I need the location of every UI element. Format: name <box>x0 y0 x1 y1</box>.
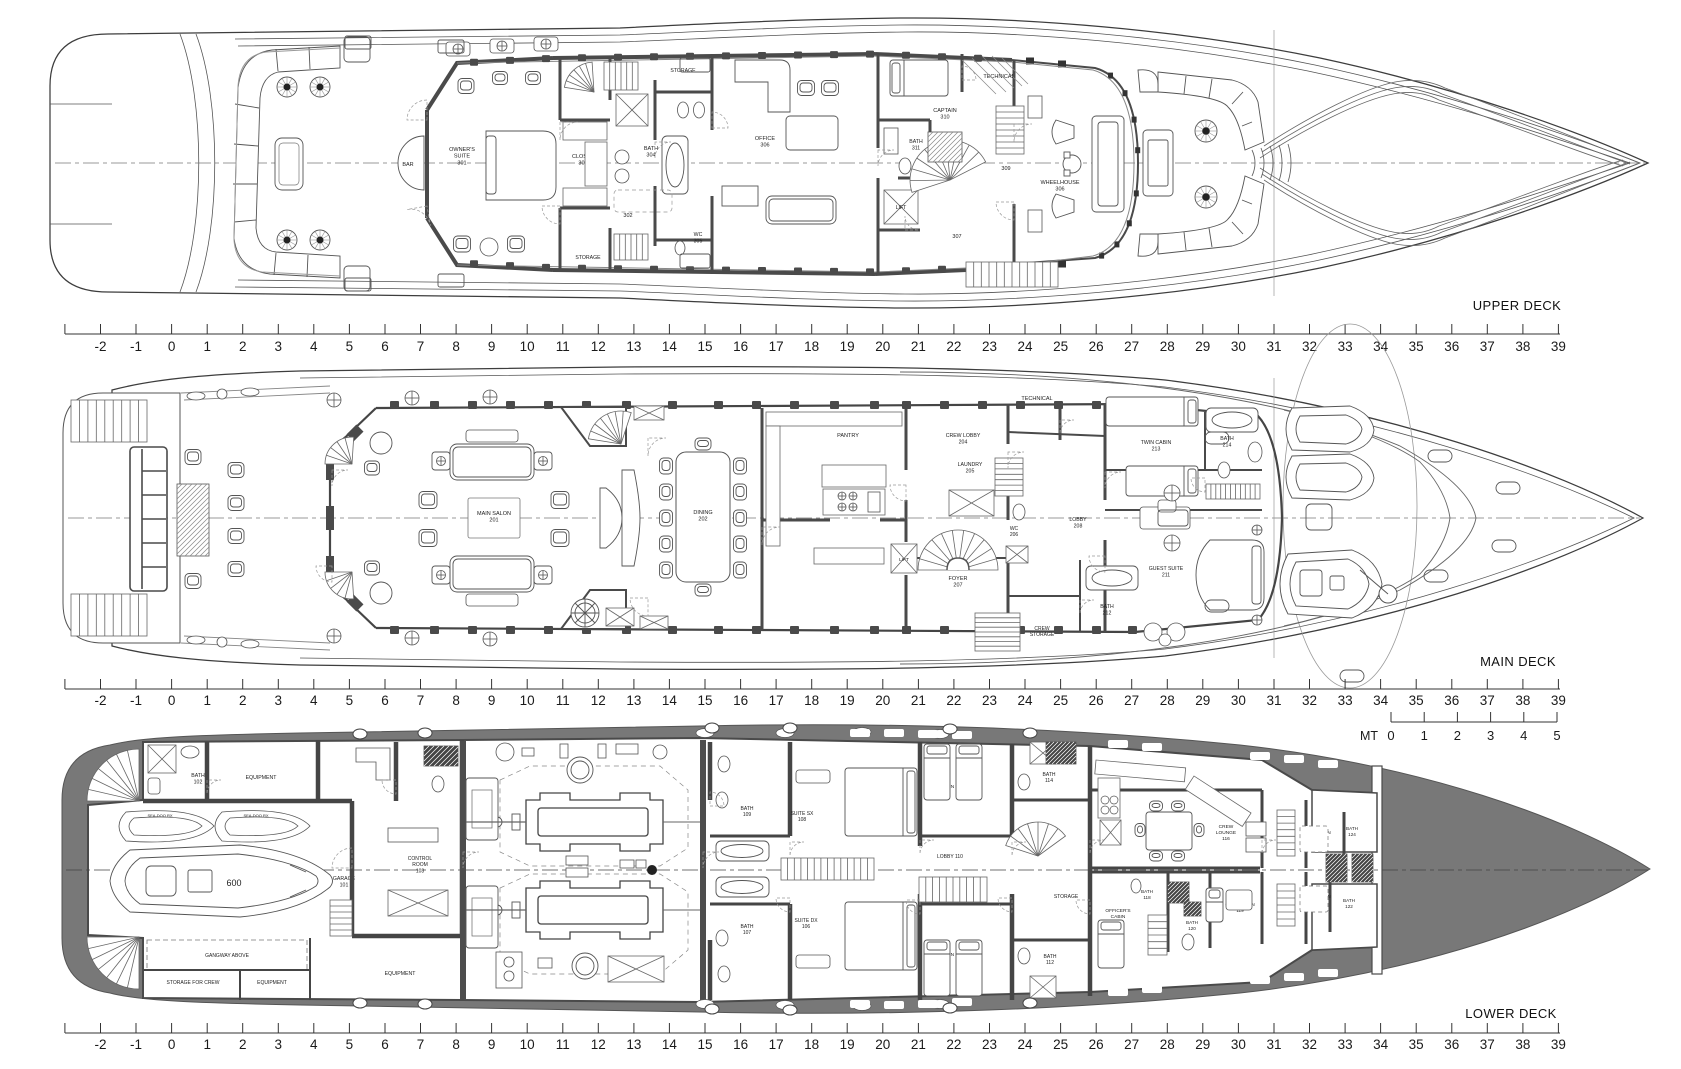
svg-text:0: 0 <box>168 693 176 708</box>
svg-text:35: 35 <box>1409 1037 1424 1052</box>
svg-text:22: 22 <box>946 693 961 708</box>
svg-text:103: 103 <box>416 868 425 874</box>
svg-text:BATH: BATH <box>1100 604 1114 610</box>
svg-text:6: 6 <box>381 1037 389 1052</box>
svg-text:14: 14 <box>662 693 678 708</box>
svg-text:1: 1 <box>203 339 211 354</box>
svg-text:BATH: BATH <box>1043 772 1056 778</box>
svg-text:BATH: BATH <box>644 146 658 152</box>
svg-text:306: 306 <box>760 143 769 149</box>
svg-text:TECHNICAL: TECHNICAL <box>1021 396 1052 402</box>
svg-text:37: 37 <box>1480 339 1495 354</box>
svg-text:2: 2 <box>1454 728 1461 743</box>
svg-text:CABIN: CABIN <box>1111 914 1126 920</box>
svg-text:BATH: BATH <box>1343 898 1355 903</box>
svg-text:15: 15 <box>697 693 712 708</box>
svg-text:304: 304 <box>646 153 655 159</box>
svg-text:CONTROL: CONTROL <box>408 856 433 862</box>
svg-text:OFFICER'S: OFFICER'S <box>1105 908 1130 914</box>
svg-text:20: 20 <box>875 693 890 708</box>
svg-text:21: 21 <box>911 1037 926 1052</box>
svg-text:2: 2 <box>239 1037 247 1052</box>
svg-text:24: 24 <box>1017 1037 1033 1052</box>
svg-text:0: 0 <box>168 1037 176 1052</box>
svg-text:35: 35 <box>1409 339 1424 354</box>
svg-text:23: 23 <box>982 339 997 354</box>
svg-text:18: 18 <box>804 1037 819 1052</box>
svg-text:29: 29 <box>1195 339 1210 354</box>
svg-text:5: 5 <box>346 1037 354 1052</box>
svg-text:34: 34 <box>1373 1037 1389 1052</box>
svg-text:SUITE DX: SUITE DX <box>794 918 818 924</box>
svg-text:15: 15 <box>697 339 712 354</box>
svg-text:36: 36 <box>1444 693 1459 708</box>
svg-text:STORAGE FOR CREW: STORAGE FOR CREW <box>167 980 220 986</box>
svg-text:ROOM: ROOM <box>412 862 428 868</box>
svg-text:4: 4 <box>310 339 318 354</box>
svg-text:12: 12 <box>591 693 606 708</box>
svg-text:SEA-DOO RX: SEA-DOO RX <box>243 813 268 818</box>
svg-text:106: 106 <box>802 924 811 930</box>
svg-text:9: 9 <box>488 339 496 354</box>
svg-text:BAR: BAR <box>402 162 413 168</box>
svg-text:SUITE: SUITE <box>454 154 471 160</box>
svg-text:21: 21 <box>911 339 926 354</box>
svg-text:204: 204 <box>959 439 968 445</box>
svg-text:BATH: BATH <box>909 139 923 145</box>
svg-text:37: 37 <box>1480 693 1495 708</box>
svg-text:SEA-DOO RX: SEA-DOO RX <box>147 813 172 818</box>
svg-text:1: 1 <box>1421 728 1428 743</box>
svg-text:STORAGE: STORAGE <box>575 255 601 261</box>
svg-text:4: 4 <box>310 693 318 708</box>
svg-text:BATH: BATH <box>191 773 205 779</box>
svg-text:19: 19 <box>840 339 855 354</box>
svg-text:25: 25 <box>1053 693 1068 708</box>
svg-text:14: 14 <box>662 339 678 354</box>
svg-text:102: 102 <box>194 779 203 785</box>
svg-text:27: 27 <box>1124 339 1139 354</box>
svg-text:39: 39 <box>1551 693 1566 708</box>
svg-text:2: 2 <box>239 693 247 708</box>
svg-text:5: 5 <box>346 339 354 354</box>
svg-text:28: 28 <box>1160 1037 1175 1052</box>
svg-text:CREW: CREW <box>1034 626 1050 632</box>
svg-text:17: 17 <box>769 693 784 708</box>
svg-text:OFFICE: OFFICE <box>755 136 775 142</box>
svg-text:30: 30 <box>1231 693 1246 708</box>
svg-text:28: 28 <box>1160 339 1175 354</box>
svg-text:SUITE SX: SUITE SX <box>791 811 814 817</box>
svg-text:11: 11 <box>556 693 570 708</box>
svg-text:211: 211 <box>1162 572 1170 578</box>
svg-text:7: 7 <box>417 1037 425 1052</box>
svg-text:BATH: BATH <box>1141 889 1153 894</box>
svg-text:10: 10 <box>520 693 535 708</box>
svg-text:MAIN DECK: MAIN DECK <box>1480 654 1556 669</box>
svg-text:202: 202 <box>698 517 707 523</box>
svg-text:0: 0 <box>1387 728 1394 743</box>
svg-text:9: 9 <box>488 693 496 708</box>
svg-text:116: 116 <box>1222 836 1230 842</box>
svg-text:10: 10 <box>520 1037 535 1052</box>
svg-text:39: 39 <box>1551 339 1566 354</box>
svg-text:120: 120 <box>1188 926 1196 931</box>
svg-text:31: 31 <box>1266 1037 1281 1052</box>
svg-text:6: 6 <box>381 339 389 354</box>
svg-text:26: 26 <box>1089 339 1104 354</box>
svg-text:25: 25 <box>1053 339 1068 354</box>
svg-text:26: 26 <box>1089 1037 1104 1052</box>
svg-text:-2: -2 <box>94 693 106 708</box>
svg-text:LIFT: LIFT <box>896 205 907 211</box>
svg-text:600: 600 <box>226 878 241 888</box>
svg-text:101: 101 <box>340 882 349 888</box>
svg-text:3: 3 <box>1487 728 1494 743</box>
svg-text:-1: -1 <box>130 339 142 354</box>
svg-text:5: 5 <box>1553 728 1560 743</box>
svg-text:BATH: BATH <box>1346 826 1358 831</box>
svg-text:16: 16 <box>733 1037 748 1052</box>
svg-text:13: 13 <box>626 1037 641 1052</box>
svg-text:EQUIPMENT: EQUIPMENT <box>246 775 278 781</box>
svg-text:33: 33 <box>1338 693 1353 708</box>
svg-text:5: 5 <box>346 693 354 708</box>
svg-text:38: 38 <box>1515 1037 1530 1052</box>
svg-text:1: 1 <box>203 1037 211 1052</box>
svg-text:23: 23 <box>982 693 997 708</box>
svg-text:28: 28 <box>1160 693 1175 708</box>
svg-text:4: 4 <box>1520 728 1527 743</box>
svg-text:18: 18 <box>804 339 819 354</box>
svg-text:114: 114 <box>1045 778 1053 784</box>
svg-text:STORAGE: STORAGE <box>1054 894 1079 900</box>
svg-text:20: 20 <box>875 339 890 354</box>
svg-text:36: 36 <box>1444 339 1459 354</box>
svg-text:-1: -1 <box>130 693 142 708</box>
svg-text:BATH: BATH <box>1220 436 1234 442</box>
svg-text:-1: -1 <box>130 1037 142 1052</box>
svg-text:BATH: BATH <box>741 924 754 930</box>
svg-text:19: 19 <box>840 693 855 708</box>
svg-text:18: 18 <box>804 693 819 708</box>
svg-text:CREW LOBBY: CREW LOBBY <box>946 433 981 439</box>
svg-text:14: 14 <box>662 1037 678 1052</box>
svg-text:307: 307 <box>952 234 961 240</box>
svg-text:27: 27 <box>1124 1037 1139 1052</box>
svg-text:122: 122 <box>1345 904 1353 909</box>
svg-text:EQUIPMENT: EQUIPMENT <box>385 971 417 977</box>
svg-text:13: 13 <box>626 693 641 708</box>
svg-text:33: 33 <box>1338 1037 1353 1052</box>
svg-text:34: 34 <box>1373 693 1389 708</box>
svg-text:38: 38 <box>1515 339 1530 354</box>
svg-text:107: 107 <box>743 930 752 936</box>
svg-text:17: 17 <box>769 1037 784 1052</box>
svg-text:25: 25 <box>1053 1037 1068 1052</box>
svg-text:205: 205 <box>966 468 975 474</box>
svg-text:TWIN CABIN: TWIN CABIN <box>1141 440 1172 446</box>
svg-text:23: 23 <box>982 1037 997 1052</box>
svg-text:24: 24 <box>1017 339 1033 354</box>
svg-text:PANTRY: PANTRY <box>837 433 859 439</box>
svg-text:2: 2 <box>239 339 247 354</box>
svg-text:GUEST SUITE: GUEST SUITE <box>1149 566 1184 572</box>
svg-text:8: 8 <box>452 1037 460 1052</box>
svg-text:302: 302 <box>623 213 632 219</box>
svg-text:MT: MT <box>1360 729 1378 743</box>
svg-text:31: 31 <box>1266 339 1281 354</box>
svg-text:6: 6 <box>381 693 389 708</box>
svg-text:310: 310 <box>940 115 949 121</box>
svg-text:24: 24 <box>1017 693 1033 708</box>
svg-text:29: 29 <box>1195 693 1210 708</box>
svg-text:29: 29 <box>1195 1037 1210 1052</box>
svg-text:LOWER DECK: LOWER DECK <box>1465 1006 1556 1021</box>
svg-text:112: 112 <box>1046 960 1054 966</box>
svg-text:36: 36 <box>1444 1037 1459 1052</box>
svg-text:21: 21 <box>911 693 926 708</box>
svg-text:LIFT: LIFT <box>899 557 909 563</box>
svg-text:31: 31 <box>1266 693 1281 708</box>
svg-text:12: 12 <box>591 1037 606 1052</box>
svg-text:WHEELHOUSE: WHEELHOUSE <box>1040 180 1079 186</box>
svg-text:LOBBY 110: LOBBY 110 <box>937 854 963 860</box>
svg-text:201: 201 <box>489 518 498 524</box>
svg-text:BATH: BATH <box>741 806 754 812</box>
svg-text:34: 34 <box>1373 339 1389 354</box>
svg-text:39: 39 <box>1551 1037 1566 1052</box>
svg-text:30: 30 <box>1231 339 1246 354</box>
svg-text:19: 19 <box>840 1037 855 1052</box>
svg-text:206: 206 <box>1010 532 1019 538</box>
svg-text:33: 33 <box>1338 339 1353 354</box>
svg-text:124: 124 <box>1348 832 1356 837</box>
svg-text:27: 27 <box>1124 693 1139 708</box>
svg-text:-2: -2 <box>94 1037 106 1052</box>
svg-text:LAUNDRY: LAUNDRY <box>958 462 983 468</box>
svg-text:4: 4 <box>310 1037 318 1052</box>
svg-text:CAPTAIN: CAPTAIN <box>933 108 956 114</box>
svg-text:DINING: DINING <box>693 510 712 516</box>
svg-text:7: 7 <box>417 339 425 354</box>
svg-text:WC: WC <box>694 232 703 238</box>
svg-text:LOUNGE: LOUNGE <box>1216 830 1236 836</box>
svg-text:109: 109 <box>743 812 752 818</box>
svg-text:UPPER DECK: UPPER DECK <box>1473 298 1562 313</box>
svg-text:22: 22 <box>946 339 961 354</box>
svg-text:208: 208 <box>1074 523 1083 529</box>
svg-text:TECHNICAL: TECHNICAL <box>983 74 1014 80</box>
svg-text:22: 22 <box>946 1037 961 1052</box>
svg-text:301: 301 <box>457 160 466 166</box>
svg-text:309: 309 <box>1001 166 1010 172</box>
svg-text:CREW: CREW <box>1219 824 1234 830</box>
svg-text:11: 11 <box>556 339 570 354</box>
svg-text:15: 15 <box>697 1037 712 1052</box>
svg-text:LOBBY: LOBBY <box>1069 517 1087 523</box>
svg-text:207: 207 <box>953 583 962 589</box>
svg-text:17: 17 <box>769 339 784 354</box>
svg-text:212: 212 <box>1103 610 1112 616</box>
svg-text:11: 11 <box>556 1037 570 1052</box>
svg-text:305: 305 <box>694 238 703 244</box>
svg-text:12: 12 <box>591 339 606 354</box>
svg-text:10: 10 <box>520 339 535 354</box>
svg-text:OWNER'S: OWNER'S <box>449 147 475 153</box>
svg-text:13: 13 <box>626 339 641 354</box>
svg-text:108: 108 <box>798 817 807 823</box>
svg-text:38: 38 <box>1515 693 1530 708</box>
svg-text:311: 311 <box>912 145 920 151</box>
svg-text:8: 8 <box>452 339 460 354</box>
svg-text:8: 8 <box>452 693 460 708</box>
svg-text:-2: -2 <box>94 339 106 354</box>
svg-text:GANGWAY ABOVE: GANGWAY ABOVE <box>205 953 249 959</box>
svg-text:16: 16 <box>733 693 748 708</box>
svg-text:3: 3 <box>275 1037 283 1052</box>
svg-text:BATH: BATH <box>1186 920 1198 925</box>
svg-text:STORAGE: STORAGE <box>1030 632 1055 638</box>
svg-text:3: 3 <box>275 693 283 708</box>
svg-text:EQUIPMENT: EQUIPMENT <box>257 980 287 986</box>
svg-text:213: 213 <box>1152 446 1161 452</box>
svg-text:BATH: BATH <box>1044 954 1057 960</box>
svg-text:118: 118 <box>1143 895 1151 900</box>
svg-text:FOYER: FOYER <box>949 576 968 582</box>
svg-text:32: 32 <box>1302 1037 1317 1052</box>
svg-text:35: 35 <box>1409 693 1424 708</box>
svg-text:26: 26 <box>1089 693 1104 708</box>
svg-text:30: 30 <box>1231 1037 1246 1052</box>
svg-text:214: 214 <box>1223 442 1232 448</box>
svg-text:7: 7 <box>417 693 425 708</box>
svg-text:20: 20 <box>875 1037 890 1052</box>
svg-text:306: 306 <box>1055 187 1064 193</box>
svg-text:9: 9 <box>488 1037 496 1052</box>
svg-text:37: 37 <box>1480 1037 1495 1052</box>
svg-text:3: 3 <box>275 339 283 354</box>
svg-text:0: 0 <box>168 339 176 354</box>
svg-text:16: 16 <box>733 339 748 354</box>
svg-text:32: 32 <box>1302 693 1317 708</box>
svg-text:STORAGE: STORAGE <box>670 68 696 74</box>
svg-text:WC: WC <box>1010 526 1019 532</box>
svg-text:1: 1 <box>203 693 211 708</box>
svg-text:MAIN SALON: MAIN SALON <box>477 511 511 517</box>
